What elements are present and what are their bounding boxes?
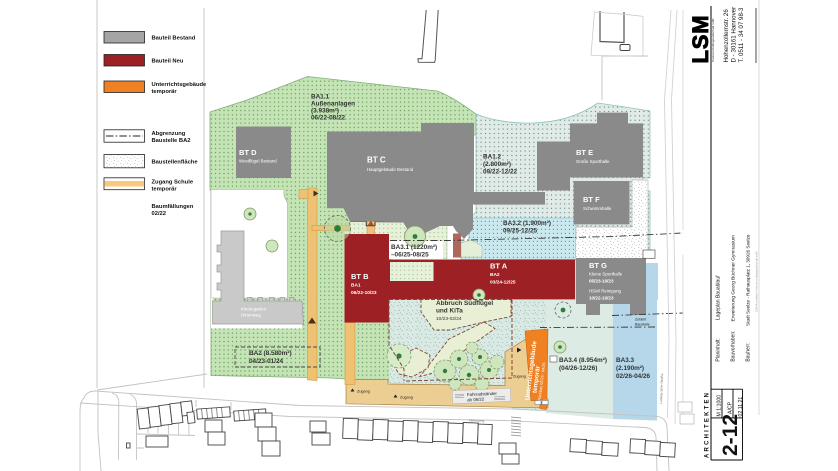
- svg-text:und KiTa: und KiTa: [436, 308, 463, 315]
- svg-text:BA3.3: BA3.3: [616, 357, 635, 364]
- svg-text:Westflügel Bestand: Westflügel Bestand: [239, 159, 277, 164]
- svg-text:09/22-12/22: 09/22-12/22: [483, 169, 518, 176]
- svg-text:BA1: BA1: [351, 283, 361, 289]
- svg-text:03/24-12/25: 03/24-12/25: [490, 280, 516, 286]
- svg-text:BA2: BA2: [490, 272, 500, 278]
- svg-text:BT E: BT E: [576, 148, 593, 157]
- svg-text:A/CP: A/CP: [727, 401, 733, 414]
- svg-text:Baustelle: Baustelle: [635, 323, 650, 327]
- svg-text:T. 0511 - 34 07 98-3: T. 0511 - 34 07 98-3: [738, 7, 745, 62]
- svg-text:BT G: BT G: [589, 261, 607, 270]
- svg-text:10/23-02/24: 10/23-02/24: [436, 316, 462, 322]
- svg-text:Stadt Seelze - Rathausplatz 1,: Stadt Seelze - Rathausplatz 1, 30926 See…: [746, 234, 751, 326]
- svg-text:05/23-10/23: 05/23-10/23: [589, 279, 614, 284]
- svg-text:Erweiterung Georg Büchner Gymn: Erweiterung Georg Büchner Gymnasium: [731, 235, 737, 321]
- svg-text:Bauvorhaben:: Bauvorhaben:: [731, 330, 737, 361]
- svg-text:10/22-10/23: 10/22-10/23: [589, 296, 614, 301]
- svg-text:Baustellenfläche: Baustellenfläche: [152, 160, 199, 166]
- svg-text:Abbruch Südflügel: Abbruch Südflügel: [436, 300, 493, 307]
- svg-text:BA1.2: BA1.2: [483, 154, 502, 161]
- svg-text:Zufahrt: Zufahrt: [635, 318, 646, 322]
- svg-text:Baustelle BA2: Baustelle BA2: [152, 138, 191, 144]
- svg-text:Kleine Sporthalle: Kleine Sporthalle: [589, 272, 623, 277]
- svg-text:Zugang: Zugang: [357, 390, 370, 394]
- svg-text:Bauteil Bestand: Bauteil Bestand: [152, 36, 196, 42]
- svg-text:Kindergarten: Kindergarten: [241, 307, 267, 312]
- svg-text:–06/25-08/25: –06/25-08/25: [391, 252, 429, 259]
- svg-text:LSM: LSM: [688, 15, 713, 64]
- svg-text:Zugang: Zugang: [513, 375, 526, 379]
- svg-text:Bauherr:: Bauherr:: [746, 342, 752, 361]
- svg-text:06/22-10/23: 06/22-10/23: [351, 290, 377, 296]
- svg-text:Große Sporthalle: Große Sporthalle: [576, 159, 610, 164]
- svg-text:BT A: BT A: [490, 262, 508, 271]
- svg-text:D - 30161 Hannover: D - 30161 Hannover: [731, 7, 738, 63]
- svg-text:(04/26-12/26): (04/26-12/26): [559, 365, 597, 372]
- svg-text:Bauteil Neu: Bauteil Neu: [152, 59, 184, 65]
- svg-text:BT D: BT D: [239, 148, 257, 157]
- svg-text:BA3.2 (1.900m²): BA3.2 (1.900m²): [503, 220, 551, 227]
- svg-text:BT F: BT F: [583, 195, 600, 204]
- svg-text:BT B: BT B: [351, 272, 369, 281]
- svg-text:Hirtenweg: Hirtenweg: [469, 419, 484, 423]
- svg-text:2-12: 2-12: [719, 414, 742, 456]
- svg-text:09/25-12/25: 09/25-12/25: [503, 228, 538, 235]
- svg-text:Abgrenzung: Abgrenzung: [152, 131, 186, 137]
- svg-text:02.11.21: 02.11.21: [738, 397, 744, 417]
- svg-text:04/23-01/24: 04/23-01/24: [249, 358, 284, 365]
- svg-text:ARCHITEKTEN: ARCHITEKTEN: [705, 391, 711, 458]
- svg-text:BA2 (8.580m²): BA2 (8.580m²): [249, 350, 292, 357]
- svg-text:02/26-04/26: 02/26-04/26: [616, 373, 651, 380]
- svg-text:Baumfällungen: Baumfällungen: [152, 204, 194, 210]
- svg-text:Außenanlagen: Außenanlagen: [311, 101, 355, 108]
- svg-text:Hauptgebäude Bestand: Hauptgebäude Bestand: [367, 167, 414, 172]
- svg-text:LSM Architekten Partnerschafts: LSM Architekten Partnerschaftsgesellscha…: [755, 251, 759, 312]
- svg-text:BA1.1: BA1.1: [311, 94, 330, 101]
- svg-text:BT C: BT C: [367, 156, 386, 165]
- svg-text:ab 06/22: ab 06/22: [467, 397, 485, 403]
- svg-text:Schwimmhalle: Schwimmhalle: [583, 206, 612, 211]
- svg-text:Hirtenweg: Hirtenweg: [241, 313, 261, 318]
- svg-text:Hohenzollernstr. 26: Hohenzollernstr. 26: [723, 9, 730, 63]
- svg-text:Lageplan Bauablauf: Lageplan Bauablauf: [716, 275, 722, 320]
- svg-text:HSM/ Reinigung: HSM/ Reinigung: [589, 289, 622, 294]
- svg-text:(2.800m²): (2.800m²): [483, 161, 511, 168]
- svg-text:(3.938m²): (3.938m²): [311, 108, 339, 115]
- svg-text:BA3.1 (1220m²): BA3.1 (1220m²): [391, 244, 437, 251]
- svg-text:Partnerschaftsgesellschaft mbB: Partnerschaftsgesellschaft mbB: [711, 18, 715, 62]
- svg-text:Zugang Schule: Zugang Schule: [152, 180, 194, 186]
- svg-text:06/22-08/22: 06/22-08/22: [311, 115, 346, 122]
- svg-text:temporär: temporär: [152, 89, 178, 95]
- svg-text:temporär: temporär: [152, 187, 178, 193]
- svg-text:(2.190m²): (2.190m²): [616, 365, 644, 372]
- svg-text:M 1:1000: M 1:1000: [716, 395, 722, 417]
- svg-text:Planinhalt:: Planinhalt:: [716, 338, 722, 361]
- svg-text:Zugang: Zugang: [400, 396, 413, 400]
- svg-text:02/22: 02/22: [152, 211, 167, 217]
- svg-text:Unterrichtsgebäude: Unterrichtsgebäude: [152, 82, 208, 88]
- svg-text:BA3.4 (8.954m²): BA3.4 (8.954m²): [559, 357, 607, 364]
